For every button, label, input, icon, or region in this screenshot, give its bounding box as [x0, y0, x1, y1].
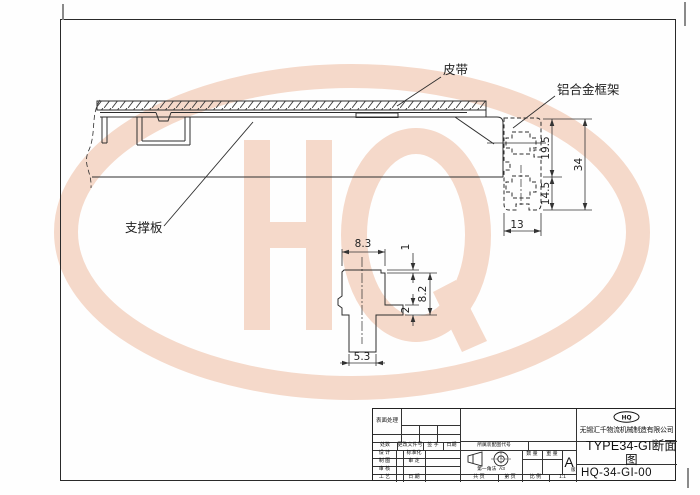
company-logo: HQ [613, 411, 640, 423]
dimension-lines [340, 119, 592, 366]
scale-value: 1:1 [549, 474, 576, 482]
dim-34: 34 [573, 158, 585, 172]
rev-col-sign: 签 字 [423, 442, 443, 450]
projection-method-label: 第一角法 A3 [460, 466, 522, 474]
dim-2: 2 [400, 307, 412, 314]
first-angle-projection-icon [465, 451, 517, 467]
title-block: 表面处理 处数 更改文件号 签 字 日期 设 计 制 图 审 核 工 艺 标准化… [372, 408, 676, 481]
weight-label: 重 量 [542, 450, 562, 459]
support-box [92, 110, 503, 177]
detail-profile-view [338, 257, 403, 352]
row-design: 设 计 [373, 450, 396, 458]
break-line [86, 100, 100, 188]
assembly-code-label: 所属装配图代号 [460, 441, 528, 450]
row-date: 日 期 [403, 474, 425, 482]
belt-hatched [97, 101, 486, 110]
trim-mark [687, 468, 689, 488]
drawing-sheet: 皮带 铝合金框架 支撑板 19.5 14.5 34 13 8.3 1 8.2 2… [0, 0, 700, 495]
rev-col-count: 处数 [373, 442, 397, 450]
rev-col-date: 日期 [443, 442, 460, 450]
left-bracket [102, 117, 107, 143]
leader-lines [164, 77, 555, 226]
row-process: 工 艺 [373, 474, 396, 482]
dim-5-3: 5.3 [354, 351, 371, 363]
company-name: 无锡汇千物流机械制造有限公司 [576, 424, 677, 439]
rev-col-docno: 更改文件号 [397, 442, 423, 450]
projection-text: 第一角法 [477, 467, 496, 473]
revision-suffix: 版 [571, 467, 576, 473]
row-check: 审 核 [373, 466, 396, 474]
paper-size: A3 [499, 467, 505, 473]
row-standardization: 标准化 [403, 450, 425, 458]
main-section-view [86, 100, 546, 207]
dim-1: 1 [400, 244, 412, 251]
page-number: 第 页 [498, 474, 522, 482]
quantity-label: 数 量 [522, 450, 542, 459]
label-support-plate: 支撑板 [125, 220, 163, 235]
row-draft: 制 图 [373, 458, 396, 466]
logo-text: HQ [621, 414, 631, 421]
trim-mark [62, 4, 64, 20]
pages-total: 共 页 [460, 474, 498, 482]
drawing-title: TYPE34-GI断面图 [576, 442, 682, 464]
trim-mark [684, 2, 686, 26]
dim-8-2: 8.2 [417, 286, 429, 303]
dim-13: 13 [510, 219, 523, 231]
dim-8-3: 8.3 [355, 238, 372, 250]
label-frame: 铝合金框架 [557, 82, 620, 97]
surface-treatment-label: 表面处理 [373, 410, 401, 433]
label-belt: 皮带 [443, 62, 468, 77]
aluminium-profile-dashed [504, 118, 541, 210]
dim-14-5: 14.5 [540, 182, 552, 205]
drawing-number: HQ-34-GI-00 [576, 465, 682, 482]
dim-19-5: 19.5 [540, 136, 552, 159]
scale-label: 比 例 [522, 474, 549, 482]
row-approval: 审 定 [403, 458, 425, 466]
